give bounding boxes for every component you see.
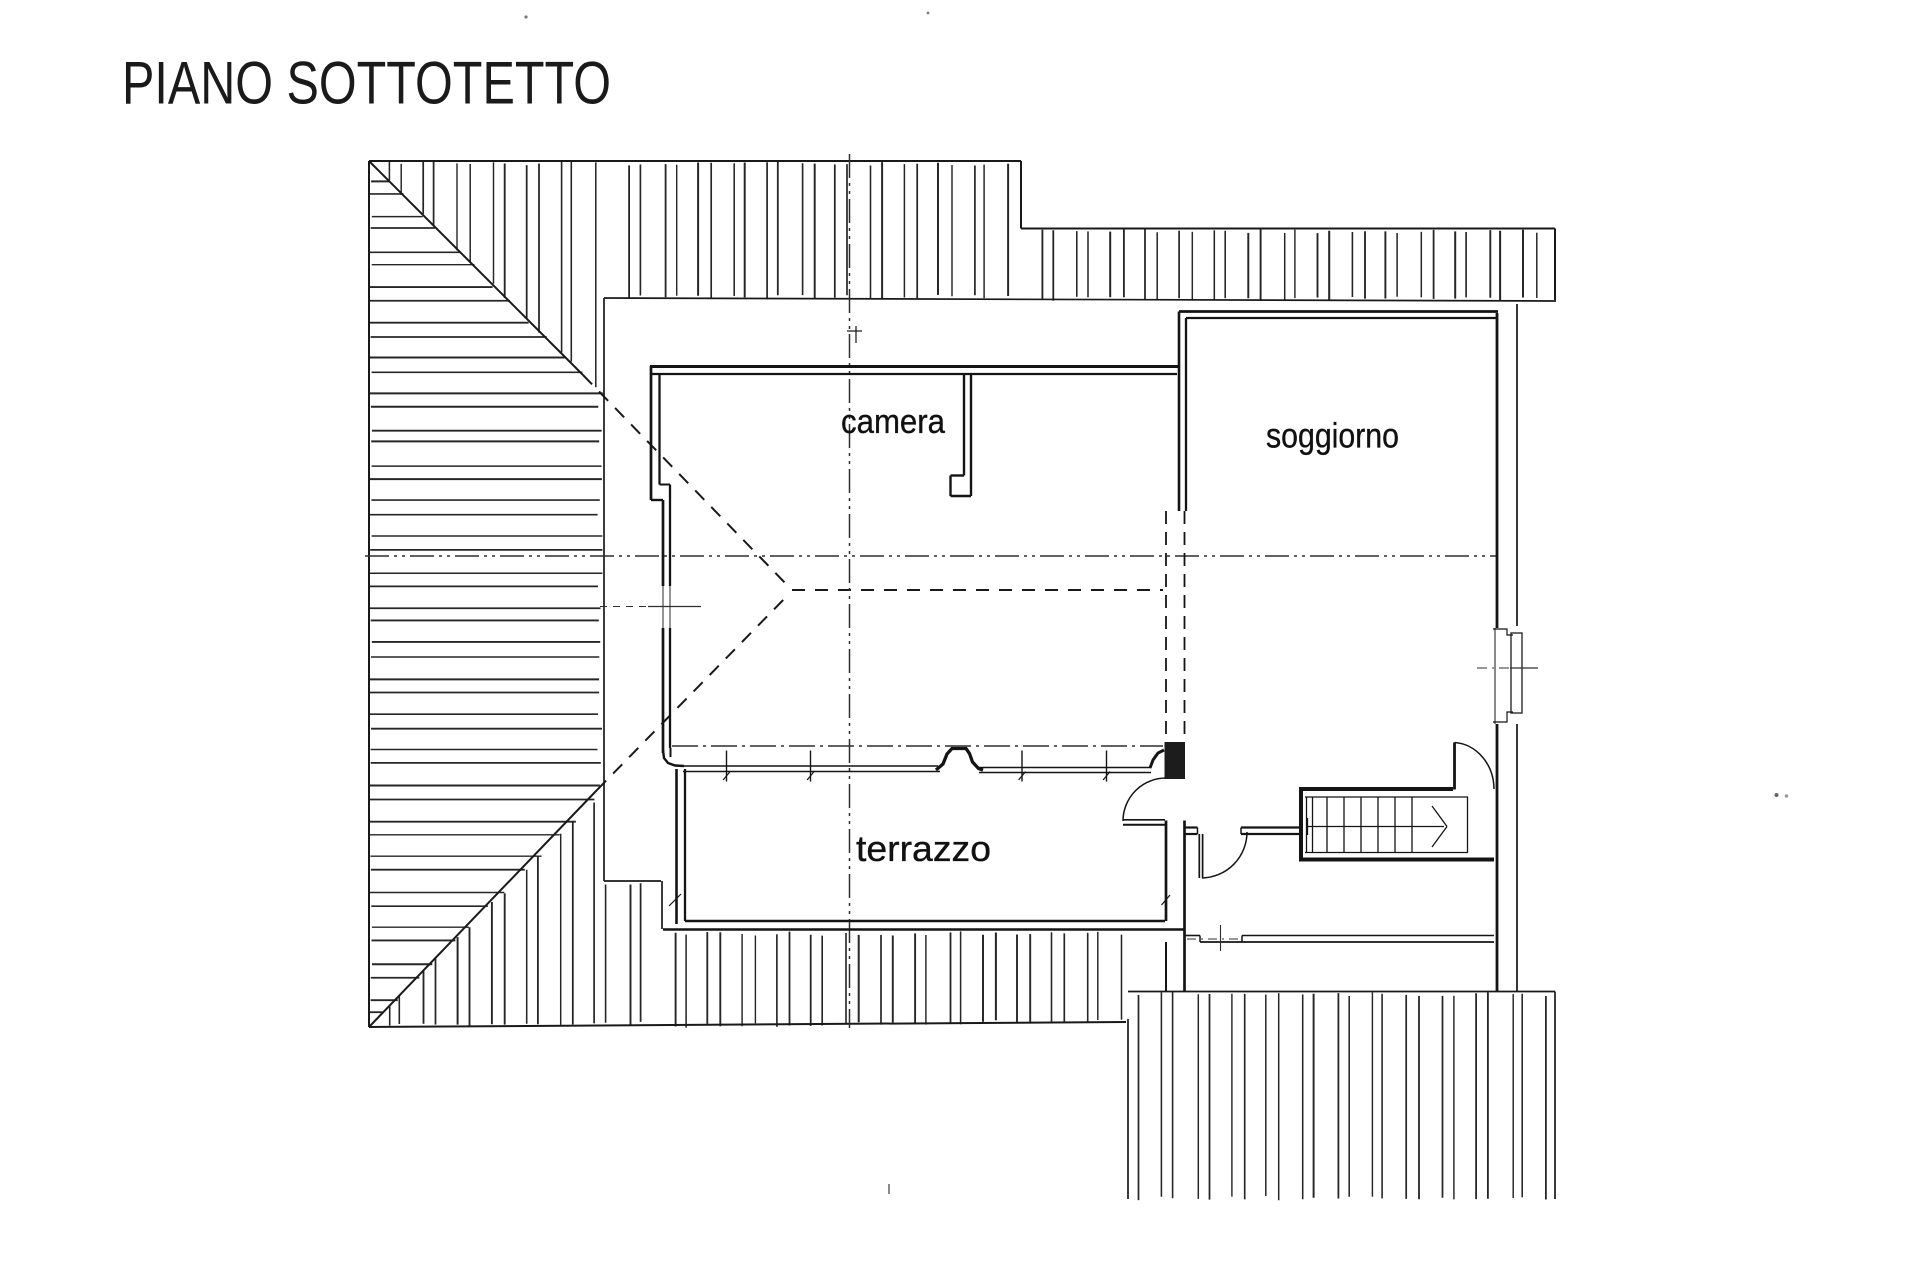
svg-text:soggiorno: soggiorno [1266,417,1399,456]
svg-text:terrazzo: terrazzo [856,828,991,869]
svg-text:PIANO SOTTOTETTO: PIANO SOTTOTETTO [122,50,611,117]
svg-text:camera: camera [841,403,945,441]
